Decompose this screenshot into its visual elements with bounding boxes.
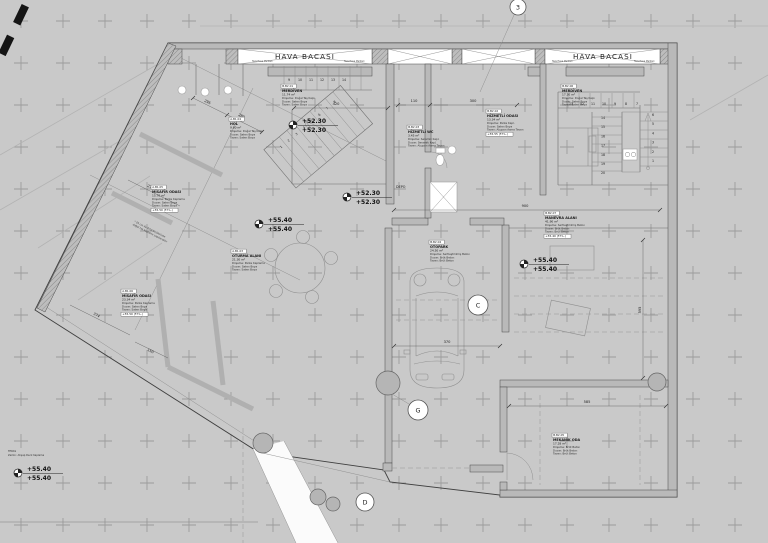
svg-text:3: 3 xyxy=(652,141,654,145)
svg-text:A.B1.05: A.B1.05 xyxy=(152,185,163,189)
svg-text:2: 2 xyxy=(652,150,654,154)
axis-label-c: C xyxy=(476,302,481,310)
dim-370: 370 xyxy=(444,340,452,344)
svg-text:Tavan: Saten Boya: Tavan: Saten Boya xyxy=(151,203,177,207)
elev-text: +52.30 xyxy=(302,118,326,125)
svg-text:B.B2.07: B.B2.07 xyxy=(545,211,556,215)
teras-finish: Zemin: Ahşap Deck Kaplama xyxy=(8,453,45,457)
svg-text:16: 16 xyxy=(601,134,605,138)
vent-note-1: Taze Hava Menfezi xyxy=(252,60,273,63)
svg-text:9: 9 xyxy=(288,78,290,82)
vent-note-4: Taze Hava Menfezi xyxy=(634,60,655,63)
dim-585: 585 xyxy=(584,400,591,404)
svg-text:9: 9 xyxy=(614,102,616,106)
dim-420: 420 xyxy=(333,102,341,106)
dim-595: 595 xyxy=(638,307,642,314)
svg-text:B.B2.03: B.B2.03 xyxy=(408,125,419,129)
svg-text:A.B1.03: A.B1.03 xyxy=(232,249,243,253)
svg-text:14: 14 xyxy=(342,78,346,82)
elev-text: +55.40 xyxy=(27,466,51,473)
hava-bacasi-label-left: HAVA BACASI xyxy=(275,52,335,61)
vent-note-3: Taze Hava Menfezi xyxy=(552,60,573,63)
svg-text:12: 12 xyxy=(320,78,324,82)
svg-text:Tavan: Saten Boya: Tavan: Saten Boya xyxy=(121,307,147,311)
svg-text:6: 6 xyxy=(652,113,654,117)
svg-text:B.B2.01: B.B2.01 xyxy=(282,84,293,88)
axis-label-d: D xyxy=(362,499,367,507)
svg-text:15: 15 xyxy=(601,125,605,129)
svg-text:10: 10 xyxy=(298,78,302,82)
depo-label: DEPO xyxy=(396,185,406,189)
axis-label-g: G xyxy=(415,407,420,415)
svg-text:+55.50 (F.T.L.): +55.50 (F.T.L.) xyxy=(152,208,173,212)
svg-text:Tavan: Alçıpan Asma Tavan: Tavan: Alçıpan Asma Tavan xyxy=(407,143,445,147)
svg-text:+55.55 (F.T.L.): +55.55 (F.T.L.) xyxy=(487,132,508,136)
svg-text:20: 20 xyxy=(601,171,605,175)
elev-text: +52.30 xyxy=(356,199,380,206)
floor-plan-drawing: 13121110987 14151617181920 654321 123456… xyxy=(0,0,768,543)
svg-text:1: 1 xyxy=(652,159,654,163)
svg-text:A.B1.04: A.B1.04 xyxy=(230,117,241,121)
elev-text: +55.40 xyxy=(533,257,557,264)
svg-text:11: 11 xyxy=(309,78,313,82)
elev-text: +55.40 xyxy=(268,226,292,233)
elev-text: +52.30 xyxy=(356,190,380,197)
svg-text:A.B1.06: A.B1.06 xyxy=(122,289,133,293)
svg-text:B.B2.02: B.B2.02 xyxy=(487,109,498,113)
svg-text:Tavan: Brüt Beton: Tavan: Brüt Beton xyxy=(552,451,577,455)
svg-text:13: 13 xyxy=(331,78,335,82)
svg-text:8: 8 xyxy=(625,102,627,106)
teras-name: TERAS xyxy=(8,449,16,453)
svg-text:Tavan: Brüt Beton: Tavan: Brüt Beton xyxy=(429,258,454,262)
svg-text:11: 11 xyxy=(591,102,595,106)
svg-text:4: 4 xyxy=(652,131,654,135)
site-ground xyxy=(0,0,768,543)
dim-300: 300 xyxy=(470,99,478,103)
svg-text:14: 14 xyxy=(601,116,605,120)
svg-text:18: 18 xyxy=(601,153,605,157)
dim-900: 900 xyxy=(522,204,530,208)
svg-text:B.B2.05: B.B2.05 xyxy=(553,433,564,437)
svg-text:+55.50 (F.T.L.): +55.50 (F.T.L.) xyxy=(122,312,143,316)
plan-canvas: 13121110987 14151617181920 654321 123456… xyxy=(0,0,768,543)
svg-text:Tavan: Saten Boya: Tavan: Saten Boya xyxy=(229,135,255,139)
svg-text:Tavan: Saten Boya: Tavan: Saten Boya xyxy=(231,267,257,271)
svg-text:5: 5 xyxy=(652,122,654,126)
elev-text: +52.30 xyxy=(302,127,326,134)
elev-text: +55.40 xyxy=(27,475,51,482)
vent-note-2: Taze Hava Menfezi xyxy=(344,60,365,63)
svg-text:+55.40 (F.T.L.): +55.40 (F.T.L.) xyxy=(545,234,566,238)
svg-text:7: 7 xyxy=(636,102,638,106)
svg-text:B.B2.06: B.B2.06 xyxy=(562,84,573,88)
svg-text:10: 10 xyxy=(602,102,606,106)
axis-label-3: 3 xyxy=(516,4,520,12)
svg-text:19: 19 xyxy=(601,162,605,166)
svg-text:Tavan: Brüt Beton: Tavan: Brüt Beton xyxy=(544,229,569,233)
svg-text:Tavan: Alçıpan Asma Tavan: Tavan: Alçıpan Asma Tavan xyxy=(486,127,524,131)
svg-text:17: 17 xyxy=(601,144,605,148)
elev-text: +55.40 xyxy=(533,266,557,273)
air-shaft-mid-1 xyxy=(388,49,452,64)
air-shaft-mid-2 xyxy=(462,49,535,64)
svg-text:B.B2.04: B.B2.04 xyxy=(430,240,441,244)
svg-text:Tavan: Saten Boya: Tavan: Saten Boya xyxy=(281,102,307,106)
hava-bacasi-label-right: HAVA BACASI xyxy=(573,52,633,61)
elev-text: +55.40 xyxy=(268,217,292,224)
svg-text:Tavan: Saten Boya: Tavan: Saten Boya xyxy=(561,102,587,106)
dim-110: 110 xyxy=(411,99,419,103)
